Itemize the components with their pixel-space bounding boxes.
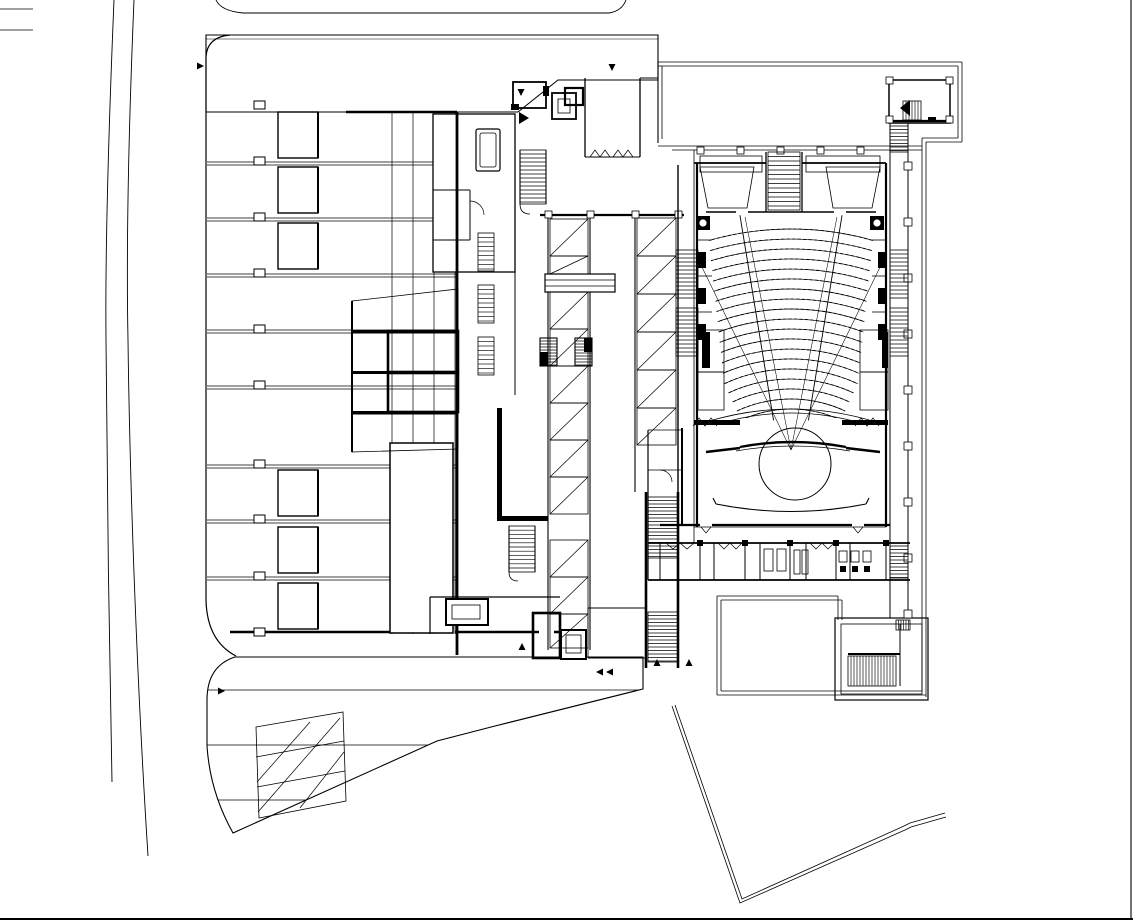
floor-plan-page bbox=[0, 0, 1136, 923]
skylight-opening bbox=[278, 583, 318, 629]
hall-room bbox=[390, 443, 453, 633]
skylight-opening bbox=[278, 112, 318, 158]
paper-background bbox=[0, 0, 1136, 923]
bridge-link bbox=[545, 274, 615, 292]
stair-treads bbox=[903, 101, 921, 120]
skylight-opening bbox=[278, 167, 318, 213]
bearing-wall bbox=[497, 408, 502, 520]
floor-plan-canvas bbox=[0, 0, 1136, 923]
skylight-opening bbox=[278, 527, 318, 573]
skylight-opening bbox=[278, 223, 318, 269]
bearing-wall bbox=[497, 516, 548, 521]
skylight-opening bbox=[278, 470, 318, 516]
studio-room bbox=[433, 114, 515, 272]
